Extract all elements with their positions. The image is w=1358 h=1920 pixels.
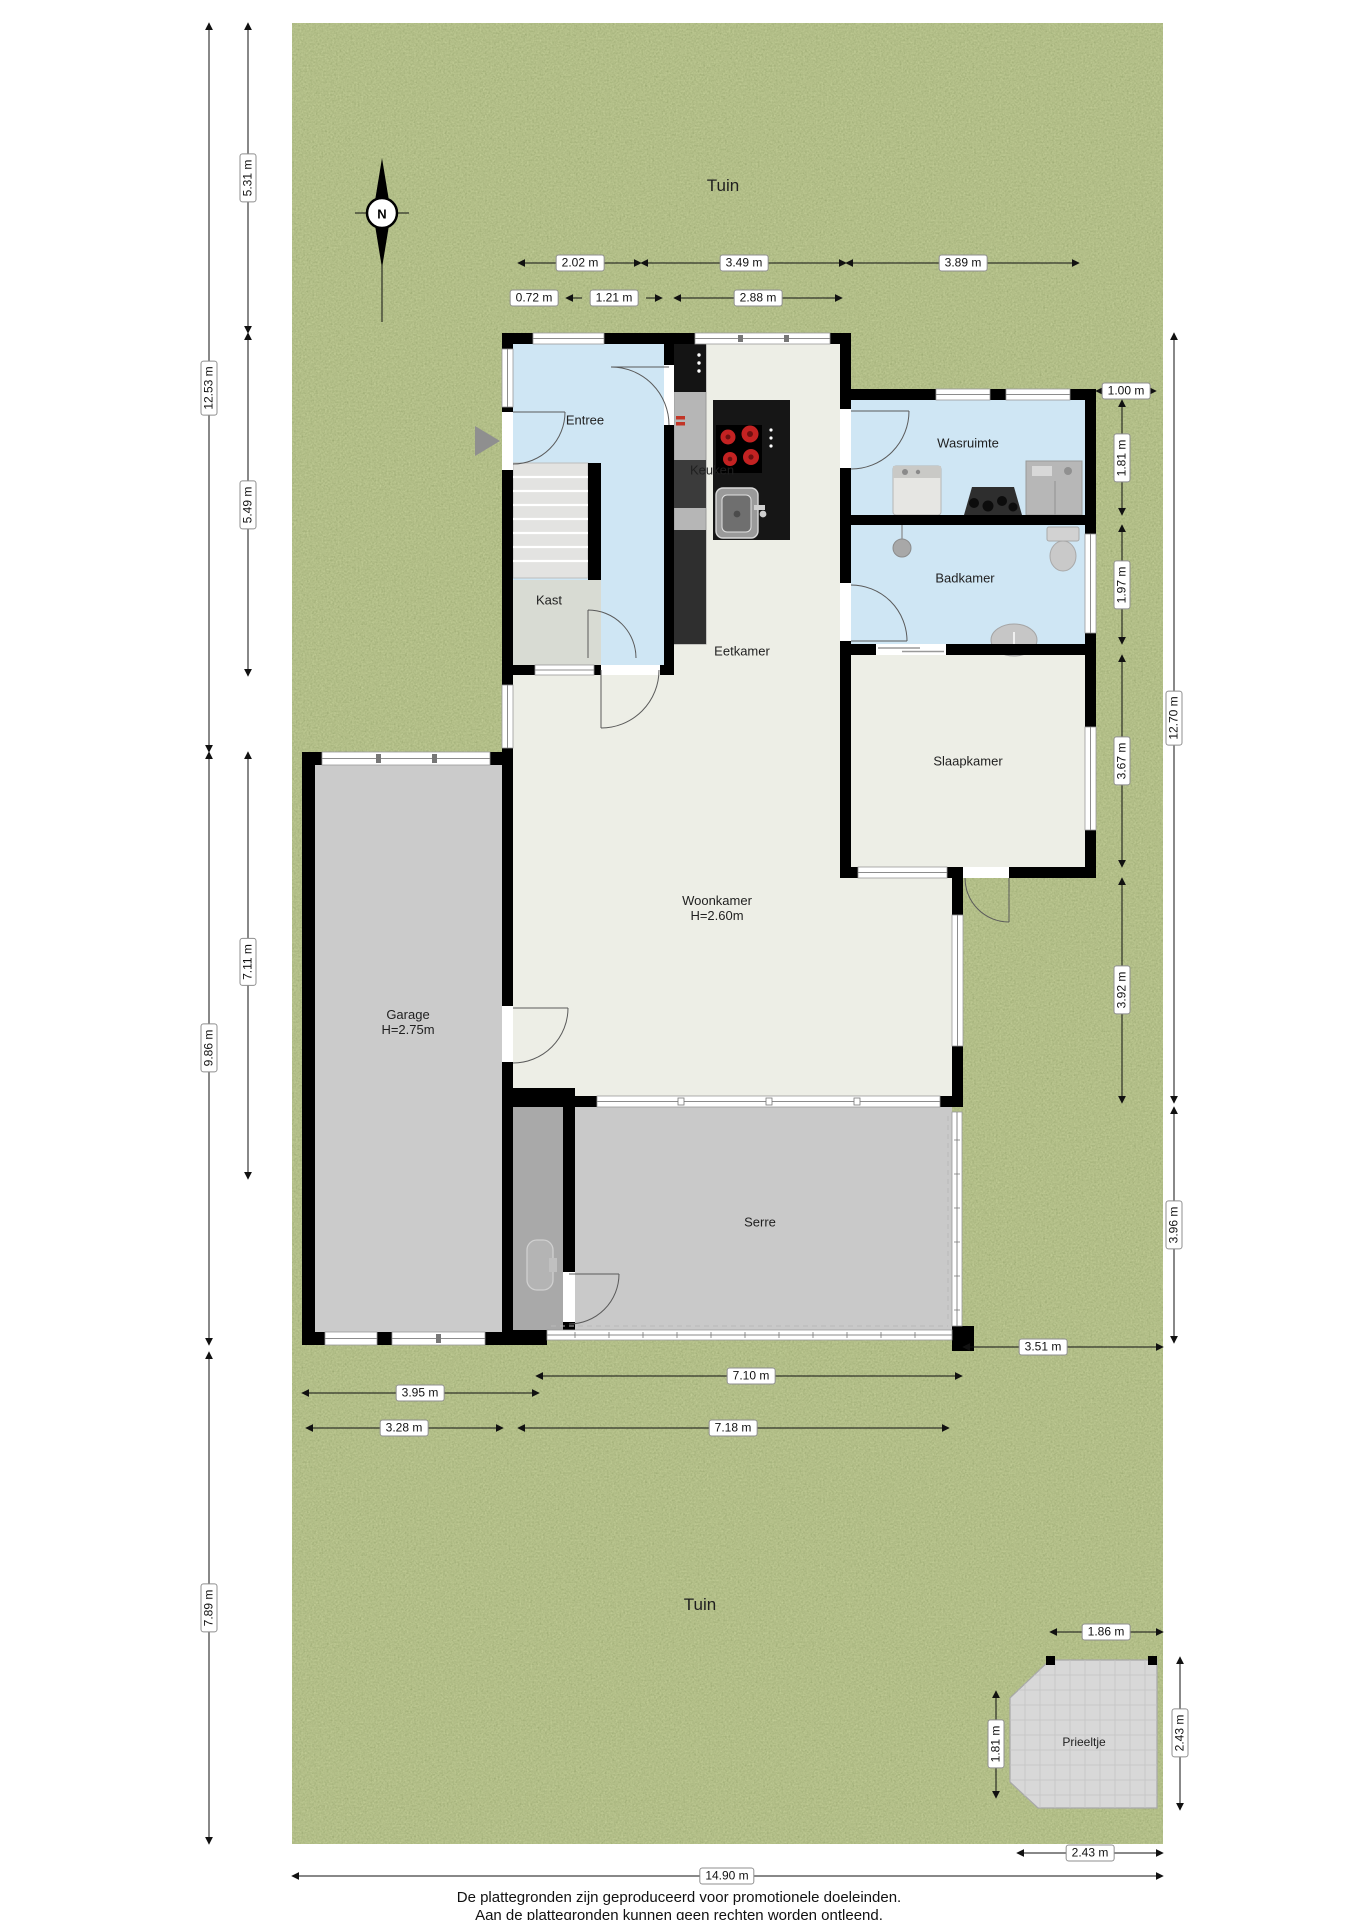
dim-14-90: 14.90 m bbox=[699, 1868, 754, 1885]
dim-3-96: 3.96 m bbox=[1166, 1201, 1183, 1250]
room-label-woonkamer-name: Woonkamer bbox=[682, 893, 752, 908]
dim-7-11: 7.11 m bbox=[240, 938, 257, 986]
dim-3-28: 3.28 m bbox=[380, 1420, 429, 1437]
room-woonkamer-ext-floor bbox=[840, 878, 952, 1096]
dim-12-53: 12.53 m bbox=[201, 360, 218, 415]
room-label-garage-height: H=2.75m bbox=[381, 1022, 434, 1037]
footer-disclaimer-line2: Aan de plattegronden kunnen geen rechten… bbox=[0, 1907, 1358, 1920]
cooker-icon bbox=[964, 487, 1022, 515]
prieeltje-structure bbox=[1010, 1656, 1157, 1808]
room-label-woonkamer-height: H=2.60m bbox=[682, 908, 752, 923]
garage-passage-floor bbox=[513, 1107, 563, 1330]
room-label-wasruimte: Wasruimte bbox=[937, 436, 999, 451]
room-label-keuken: Keuken bbox=[690, 463, 734, 478]
boiler-icon bbox=[1026, 461, 1082, 515]
dim-1-86: 1.86 m bbox=[1082, 1624, 1131, 1641]
room-label-garage: Garage H=2.75m bbox=[381, 1007, 434, 1037]
washing-machine-icon bbox=[893, 466, 941, 515]
garden-label-bottom: Tuin bbox=[684, 1595, 716, 1615]
room-garage-floor bbox=[315, 765, 502, 1332]
floorplan-page: N Tuin Tuin Entree Kast Keuken Eetkamer … bbox=[0, 0, 1358, 1920]
garden-label-top: Tuin bbox=[707, 176, 739, 196]
kitchen-counter bbox=[674, 344, 706, 644]
dim-12-70: 12.70 m bbox=[1166, 690, 1183, 745]
dim-3-51: 3.51 m bbox=[1019, 1339, 1068, 1356]
garage-sink-icon bbox=[527, 1240, 557, 1290]
dim-2-43-right: 2.43 m bbox=[1172, 1709, 1189, 1758]
dim-9-86: 9.86 m bbox=[201, 1024, 218, 1073]
room-label-eetkamer: Eetkamer bbox=[714, 644, 770, 659]
dim-5-49: 5.49 m bbox=[240, 481, 257, 530]
dim-1-00: 1.00 m bbox=[1102, 383, 1151, 400]
dim-3-49: 3.49 m bbox=[720, 255, 769, 272]
room-label-entree: Entree bbox=[566, 413, 604, 428]
dim-0-72: 0.72 m bbox=[510, 290, 559, 307]
dim-3-95: 3.95 m bbox=[396, 1385, 445, 1402]
dim-1-21: 1.21 m bbox=[590, 290, 639, 307]
dim-2-88: 2.88 m bbox=[734, 290, 783, 307]
room-label-garage-name: Garage bbox=[381, 1007, 434, 1022]
room-label-slaapkamer: Slaapkamer bbox=[933, 754, 1002, 769]
compass-north-label: N bbox=[377, 207, 386, 222]
room-label-badkamer: Badkamer bbox=[935, 571, 994, 586]
footer-disclaimer-line1: De plattegronden zijn geproduceerd voor … bbox=[0, 1889, 1358, 1906]
dim-3-67: 3.67 m bbox=[1114, 737, 1131, 786]
dim-3-89: 3.89 m bbox=[939, 255, 988, 272]
dim-1-81: 1.81 m bbox=[1114, 434, 1131, 483]
toilet-icon bbox=[1047, 527, 1079, 571]
staircase bbox=[513, 463, 601, 580]
fridge-icon bbox=[674, 344, 706, 392]
room-label-woonkamer: Woonkamer H=2.60m bbox=[682, 893, 752, 923]
dim-2-02: 2.02 m bbox=[556, 255, 605, 272]
dim-5-31: 5.31 m bbox=[240, 154, 257, 203]
room-label-serre: Serre bbox=[744, 1215, 776, 1230]
room-label-prieeltje: Prieeltje bbox=[1062, 1735, 1105, 1749]
dim-7-89: 7.89 m bbox=[201, 1584, 218, 1633]
room-label-kast: Kast bbox=[536, 593, 562, 608]
dim-1-97: 1.97 m bbox=[1114, 561, 1131, 610]
dim-7-10: 7.10 m bbox=[727, 1368, 776, 1385]
dim-7-18: 7.18 m bbox=[709, 1420, 758, 1437]
dim-1-81-prieel: 1.81 m bbox=[988, 1720, 1005, 1769]
dim-2-43-bottom: 2.43 m bbox=[1066, 1845, 1115, 1862]
dim-3-92: 3.92 m bbox=[1114, 966, 1131, 1015]
